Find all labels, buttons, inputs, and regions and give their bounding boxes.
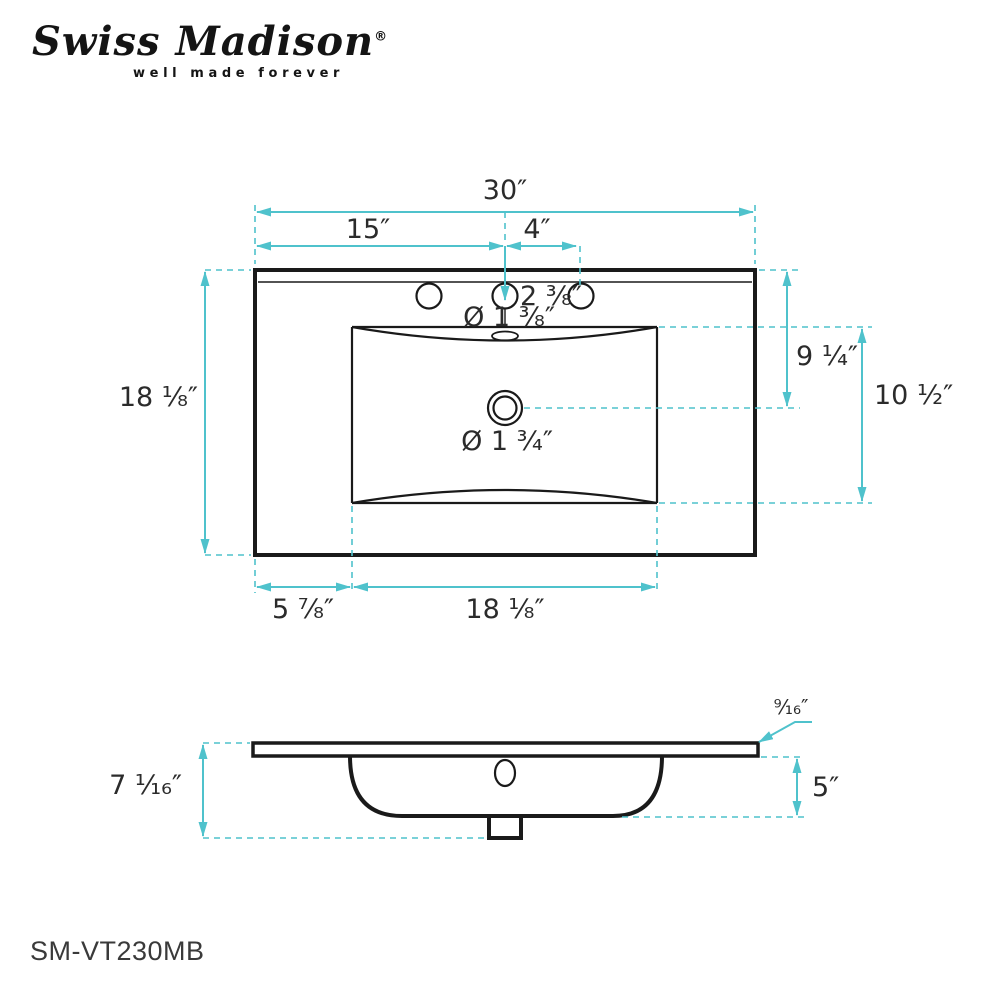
spec-sheet: Swiss Madison® well made forever: [0, 0, 1000, 1000]
dim-label-left-to-center: 15″: [346, 214, 390, 245]
leader-line-top-thickness: [759, 722, 812, 742]
part-number: SM-VT230MB: [30, 936, 205, 967]
dim-label-top-to-drain: 9 ¹⁄₄″: [796, 341, 858, 372]
basin-outline: [352, 327, 657, 503]
dimension-lines-side-view: [203, 722, 812, 836]
faucet-hole-section: [495, 760, 515, 786]
dim-label-basin-front-to-back: 10 ¹⁄₂″: [874, 380, 953, 411]
faucet-hole-left: [417, 284, 442, 309]
dim-label-top-thickness: ⁹⁄₁₆″: [774, 695, 809, 719]
technical-drawing: 30″ 15″ 4″ 2 ³⁄₈″ Ø 1 ³⁄₈″ Ø 1 ³⁄₄″ 18 ¹…: [0, 0, 1000, 1000]
dim-label-overall-depth: 18 ¹⁄₈″: [119, 382, 198, 413]
counter-slab-profile: [253, 743, 758, 756]
dim-label-overall-height: 7 ¹⁄₁₆″: [109, 770, 182, 801]
dim-label-basin-width: 18 ¹⁄₈″: [465, 594, 544, 625]
dim-label-center-to-side-hole: 4″: [523, 214, 550, 245]
drain-stub: [489, 816, 521, 838]
dim-label-overall-width: 30″: [483, 175, 527, 206]
drain-hole-inner: [494, 397, 517, 420]
dim-label-drain-diameter: Ø 1 ³⁄₄″: [461, 426, 553, 457]
dim-label-basin-depth: 5″: [812, 772, 839, 803]
dim-label-left-edge-to-basin: 5 ⁷⁄₈″: [272, 594, 334, 625]
top-view: 30″ 15″ 4″ 2 ³⁄₈″ Ø 1 ³⁄₈″ Ø 1 ³⁄₄″ 18 ¹…: [119, 175, 953, 625]
dim-label-faucet-hole-diameter: Ø 1 ³⁄₈″: [463, 302, 555, 333]
extension-lines-top-view: [205, 205, 872, 593]
basin-front-slope-curve: [352, 490, 657, 503]
side-view: ⁹⁄₁₆″ 7 ¹⁄₁₆″ 5″: [109, 695, 839, 838]
